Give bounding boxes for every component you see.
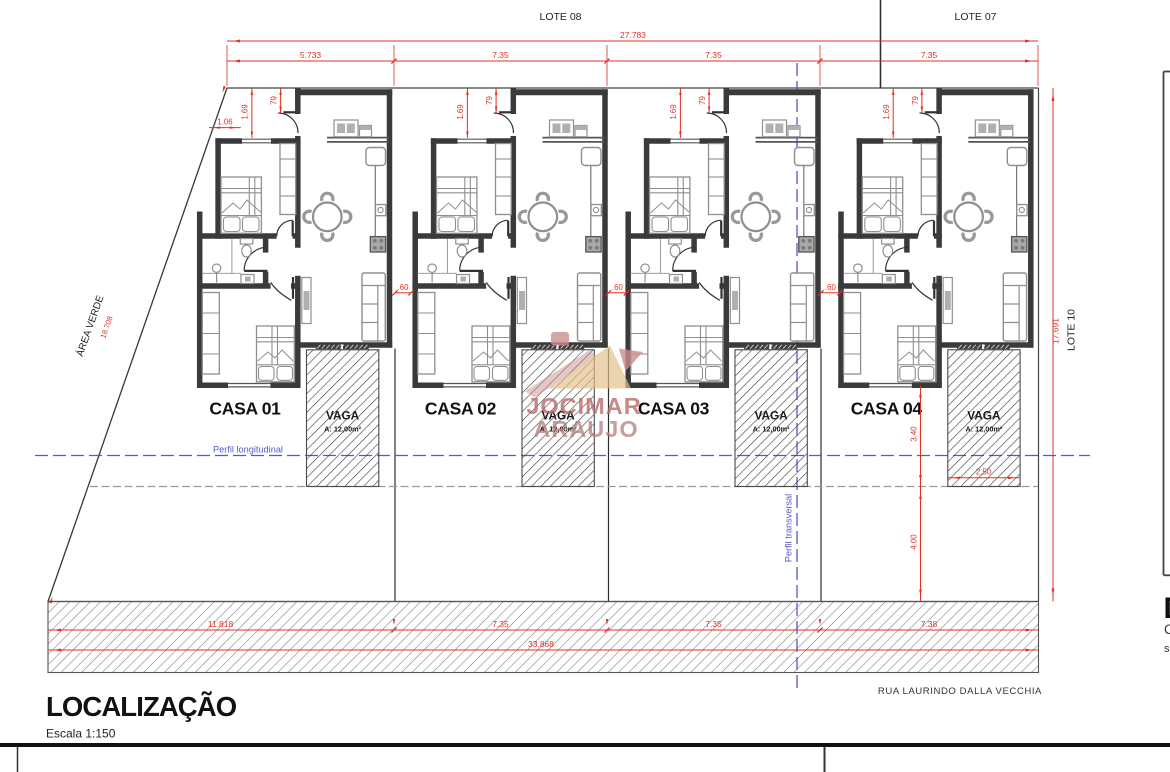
svg-text:1.69: 1.69 (241, 104, 250, 119)
svg-text:33.868: 33.868 (528, 639, 554, 649)
svg-text:VAGA: VAGA (967, 409, 1001, 423)
svg-text:A: 12,00m²: A: 12,00m² (965, 425, 1002, 434)
svg-text:17.691: 17.691 (1051, 318, 1061, 344)
svg-text:LOTE 07: LOTE 07 (954, 11, 996, 23)
svg-text:LOTE 10: LOTE 10 (1066, 309, 1078, 351)
svg-text:79: 79 (485, 96, 494, 105)
svg-text:A: 12,00m²: A: 12,00m² (753, 425, 790, 434)
svg-text:VAGA: VAGA (754, 409, 788, 423)
svg-text:1.69: 1.69 (456, 104, 465, 119)
svg-text:1.06: 1.06 (217, 118, 232, 127)
svg-text:1.69: 1.69 (882, 104, 891, 119)
svg-text:4.00: 4.00 (910, 534, 919, 550)
svg-text:27.783: 27.783 (620, 30, 646, 40)
svg-text:RUA LAURINDO DALLA VECCHIA: RUA LAURINDO DALLA VECCHIA (878, 686, 1042, 697)
svg-text:.60: .60 (398, 283, 410, 292)
svg-text:Perfil transversal: Perfil transversal (784, 494, 794, 562)
svg-text:7.35: 7.35 (492, 619, 509, 629)
svg-text:7.35: 7.35 (705, 50, 722, 60)
svg-text:79: 79 (270, 96, 279, 105)
svg-text:A: 12,00m²: A: 12,00m² (324, 425, 361, 434)
svg-text:7.35: 7.35 (705, 619, 722, 629)
svg-text:1.69: 1.69 (669, 104, 678, 119)
svg-text:CASA 01: CASA 01 (209, 399, 281, 419)
svg-text:2.50: 2.50 (976, 468, 992, 477)
svg-text:.60: .60 (612, 283, 624, 292)
svg-text:79: 79 (698, 96, 707, 105)
svg-text:CASA 02: CASA 02 (425, 399, 497, 419)
svg-text:VAGA: VAGA (326, 409, 360, 423)
svg-text:s: s (1164, 643, 1170, 655)
svg-text:Escala 1:150: Escala 1:150 (46, 727, 116, 741)
svg-text:LOTE 08: LOTE 08 (539, 11, 581, 23)
svg-text:7.38: 7.38 (921, 619, 938, 629)
svg-text:ARAUJO: ARAUJO (533, 416, 638, 442)
svg-text:79: 79 (911, 96, 920, 105)
svg-text:5.733: 5.733 (300, 50, 322, 60)
svg-text:C: C (1164, 622, 1170, 637)
svg-text:.60: .60 (825, 283, 837, 292)
svg-text:D: D (1164, 592, 1170, 625)
svg-text:7.35: 7.35 (921, 50, 938, 60)
svg-text:3.40: 3.40 (910, 426, 919, 442)
svg-text:Perfil longitudinal: Perfil longitudinal (213, 445, 283, 455)
svg-text:7.35: 7.35 (492, 50, 509, 60)
svg-text:11.818: 11.818 (208, 619, 234, 629)
svg-text:CASA 03: CASA 03 (638, 399, 710, 419)
svg-text:LOCALIZAÇÃO: LOCALIZAÇÃO (46, 691, 237, 722)
svg-text:CASA 04: CASA 04 (851, 399, 923, 419)
